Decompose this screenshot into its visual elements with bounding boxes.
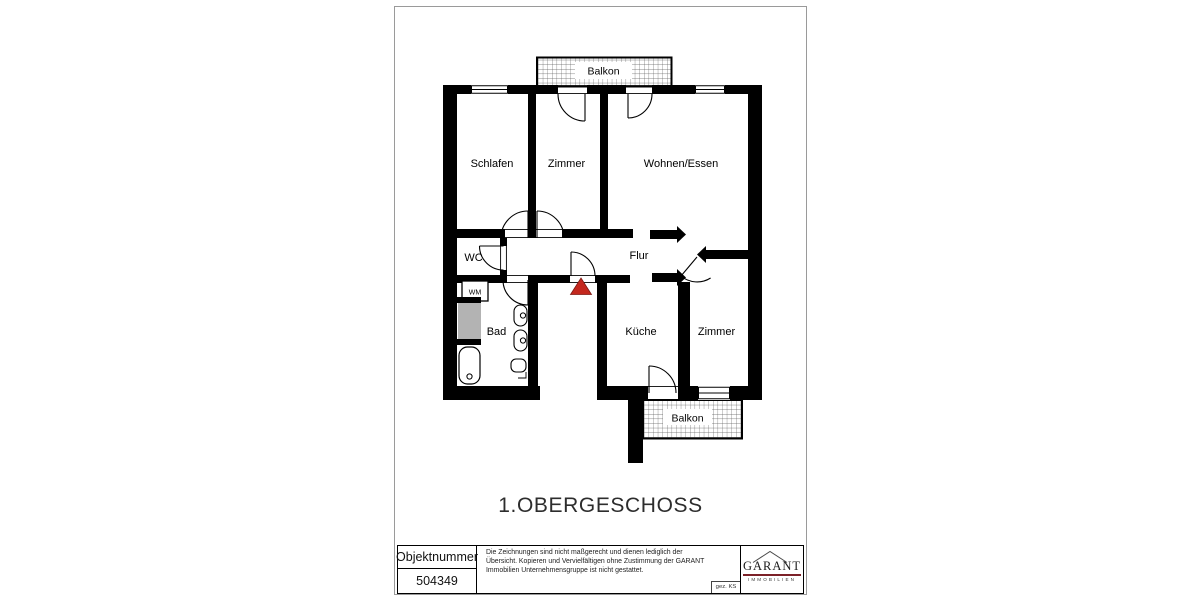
wall-divider-kueche-zimmer bbox=[678, 282, 690, 386]
page-title: 1.OBERGESCHOSS bbox=[395, 494, 806, 518]
sink bbox=[514, 330, 527, 351]
window-zimmer-bottom bbox=[698, 386, 730, 400]
balcony-bottom: Balkon bbox=[643, 400, 742, 439]
door-balcony-wohnen bbox=[628, 94, 652, 118]
arrow-right-icon bbox=[677, 226, 686, 243]
door-zimmer-top bbox=[537, 211, 564, 238]
room-label-wc: WC bbox=[464, 252, 482, 264]
room-label-wohnen: Wohnen/Essen bbox=[644, 158, 718, 170]
sink bbox=[514, 305, 527, 326]
room-label-kueche: Küche bbox=[625, 326, 656, 338]
logo-name: GARANT bbox=[743, 559, 801, 576]
wall-bottom-left bbox=[443, 386, 540, 400]
entrance-marker-icon bbox=[571, 278, 592, 295]
bathtub bbox=[459, 347, 480, 384]
disclaimer-cell: Die Zeichnungen sind nicht maßgerecht un… bbox=[477, 546, 741, 593]
shower bbox=[458, 303, 481, 339]
room-label-zimmer-top: Zimmer bbox=[548, 158, 586, 170]
room-label-flur: Flur bbox=[630, 250, 649, 262]
washing-machine-label: WM bbox=[469, 290, 482, 297]
door-thresholds bbox=[501, 86, 678, 400]
drawn-by-box: gez. KS bbox=[711, 581, 740, 593]
object-number-cell: Objektnummer 504349 bbox=[398, 546, 477, 593]
toilet bbox=[511, 359, 526, 378]
doors bbox=[480, 94, 711, 393]
wall-outer-right bbox=[748, 85, 762, 400]
door-schlafen bbox=[501, 211, 528, 238]
passage-arrows bbox=[650, 226, 748, 286]
room-label-balkon-top: Balkon bbox=[587, 66, 619, 78]
logo-cell: GARANT IMMOBILIEN bbox=[741, 546, 803, 593]
door-bad bbox=[503, 280, 528, 305]
room-label-zimmer-bottom: Zimmer bbox=[698, 326, 736, 338]
window-schlafen bbox=[471, 85, 508, 94]
page: Balkon Balkon bbox=[0, 0, 1200, 600]
wall-stub-below-balcony bbox=[628, 400, 643, 463]
wall-bad-right bbox=[528, 275, 538, 400]
object-number-label: Objektnummer bbox=[398, 546, 476, 569]
object-number-value: 504349 bbox=[398, 569, 476, 593]
door-kueche-balcony bbox=[649, 366, 676, 393]
door-wc bbox=[480, 246, 504, 270]
balcony-top: Balkon bbox=[537, 58, 672, 87]
room-label-balkon-bottom: Balkon bbox=[671, 413, 703, 425]
plan-sheet: Balkon Balkon bbox=[394, 6, 807, 595]
door-zimmer-bottom bbox=[681, 257, 711, 282]
title-block: Objektnummer 504349 Die Zeichnungen sind… bbox=[397, 545, 804, 594]
disclaimer-text: Die Zeichnungen sind nicht maßgerecht un… bbox=[486, 549, 704, 574]
door-balcony-zimmer bbox=[558, 94, 585, 121]
room-label-schlafen: Schlafen bbox=[471, 158, 514, 170]
wall-divider-schlafen-zimmer bbox=[528, 94, 536, 238]
wall-outer-left bbox=[443, 85, 457, 400]
wall-divider-zimmer-wohnen bbox=[600, 94, 608, 238]
door-entrance bbox=[571, 252, 595, 276]
window-wohnen bbox=[695, 85, 725, 94]
logo-subtitle: IMMOBILIEN bbox=[743, 577, 801, 582]
wall-kueche-left bbox=[597, 283, 607, 400]
walls bbox=[443, 85, 762, 400]
garant-logo: GARANT IMMOBILIEN bbox=[743, 557, 801, 583]
arrow-left-icon bbox=[697, 246, 706, 263]
room-label-bad: Bad bbox=[487, 326, 507, 338]
